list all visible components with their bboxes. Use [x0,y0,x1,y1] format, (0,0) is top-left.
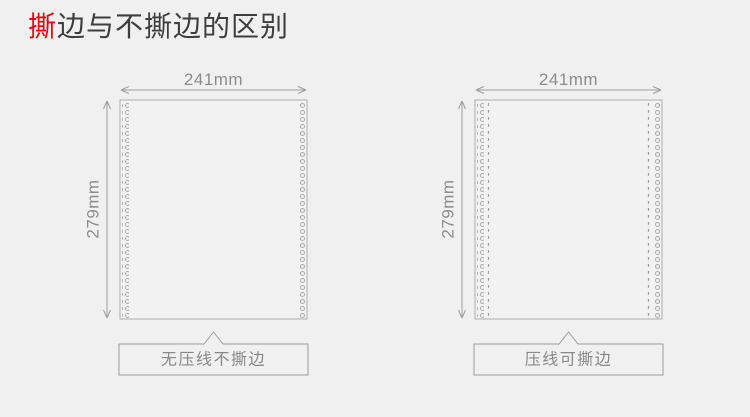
title-rest-text: 边与不撕边的区别 [57,11,289,42]
height-dimension-arrow [459,101,466,318]
width-dimension-label: 241mm [184,70,243,89]
paper-outline [475,100,662,319]
diagram-tear-edge: 241mm 279mm 压线可撕边 [395,60,725,390]
perforation-holes-right [653,102,660,319]
diagram-no-tear-edge: 241mm 279mm 无压线不撕边 [40,60,370,390]
perforation-holes-right [298,102,305,319]
title-highlight-char: 撕 [28,11,57,42]
paper-outline [120,100,307,319]
perforation-holes-left [477,102,484,319]
caption-label: 无压线不撕边 [161,351,266,369]
height-dimension-label: 279mm [84,179,103,238]
height-dimension-label: 279mm [439,179,458,238]
perforation-holes-left [122,102,129,319]
page-title: 撕边与不撕边的区别 [28,5,289,45]
product-info-page: 撕边与不撕边的区别 241mm 279mm 无压线不撕边 [0,0,750,417]
caption-label: 压线可撕边 [525,351,613,369]
height-dimension-arrow [104,101,111,318]
width-dimension-label: 241mm [539,70,598,89]
